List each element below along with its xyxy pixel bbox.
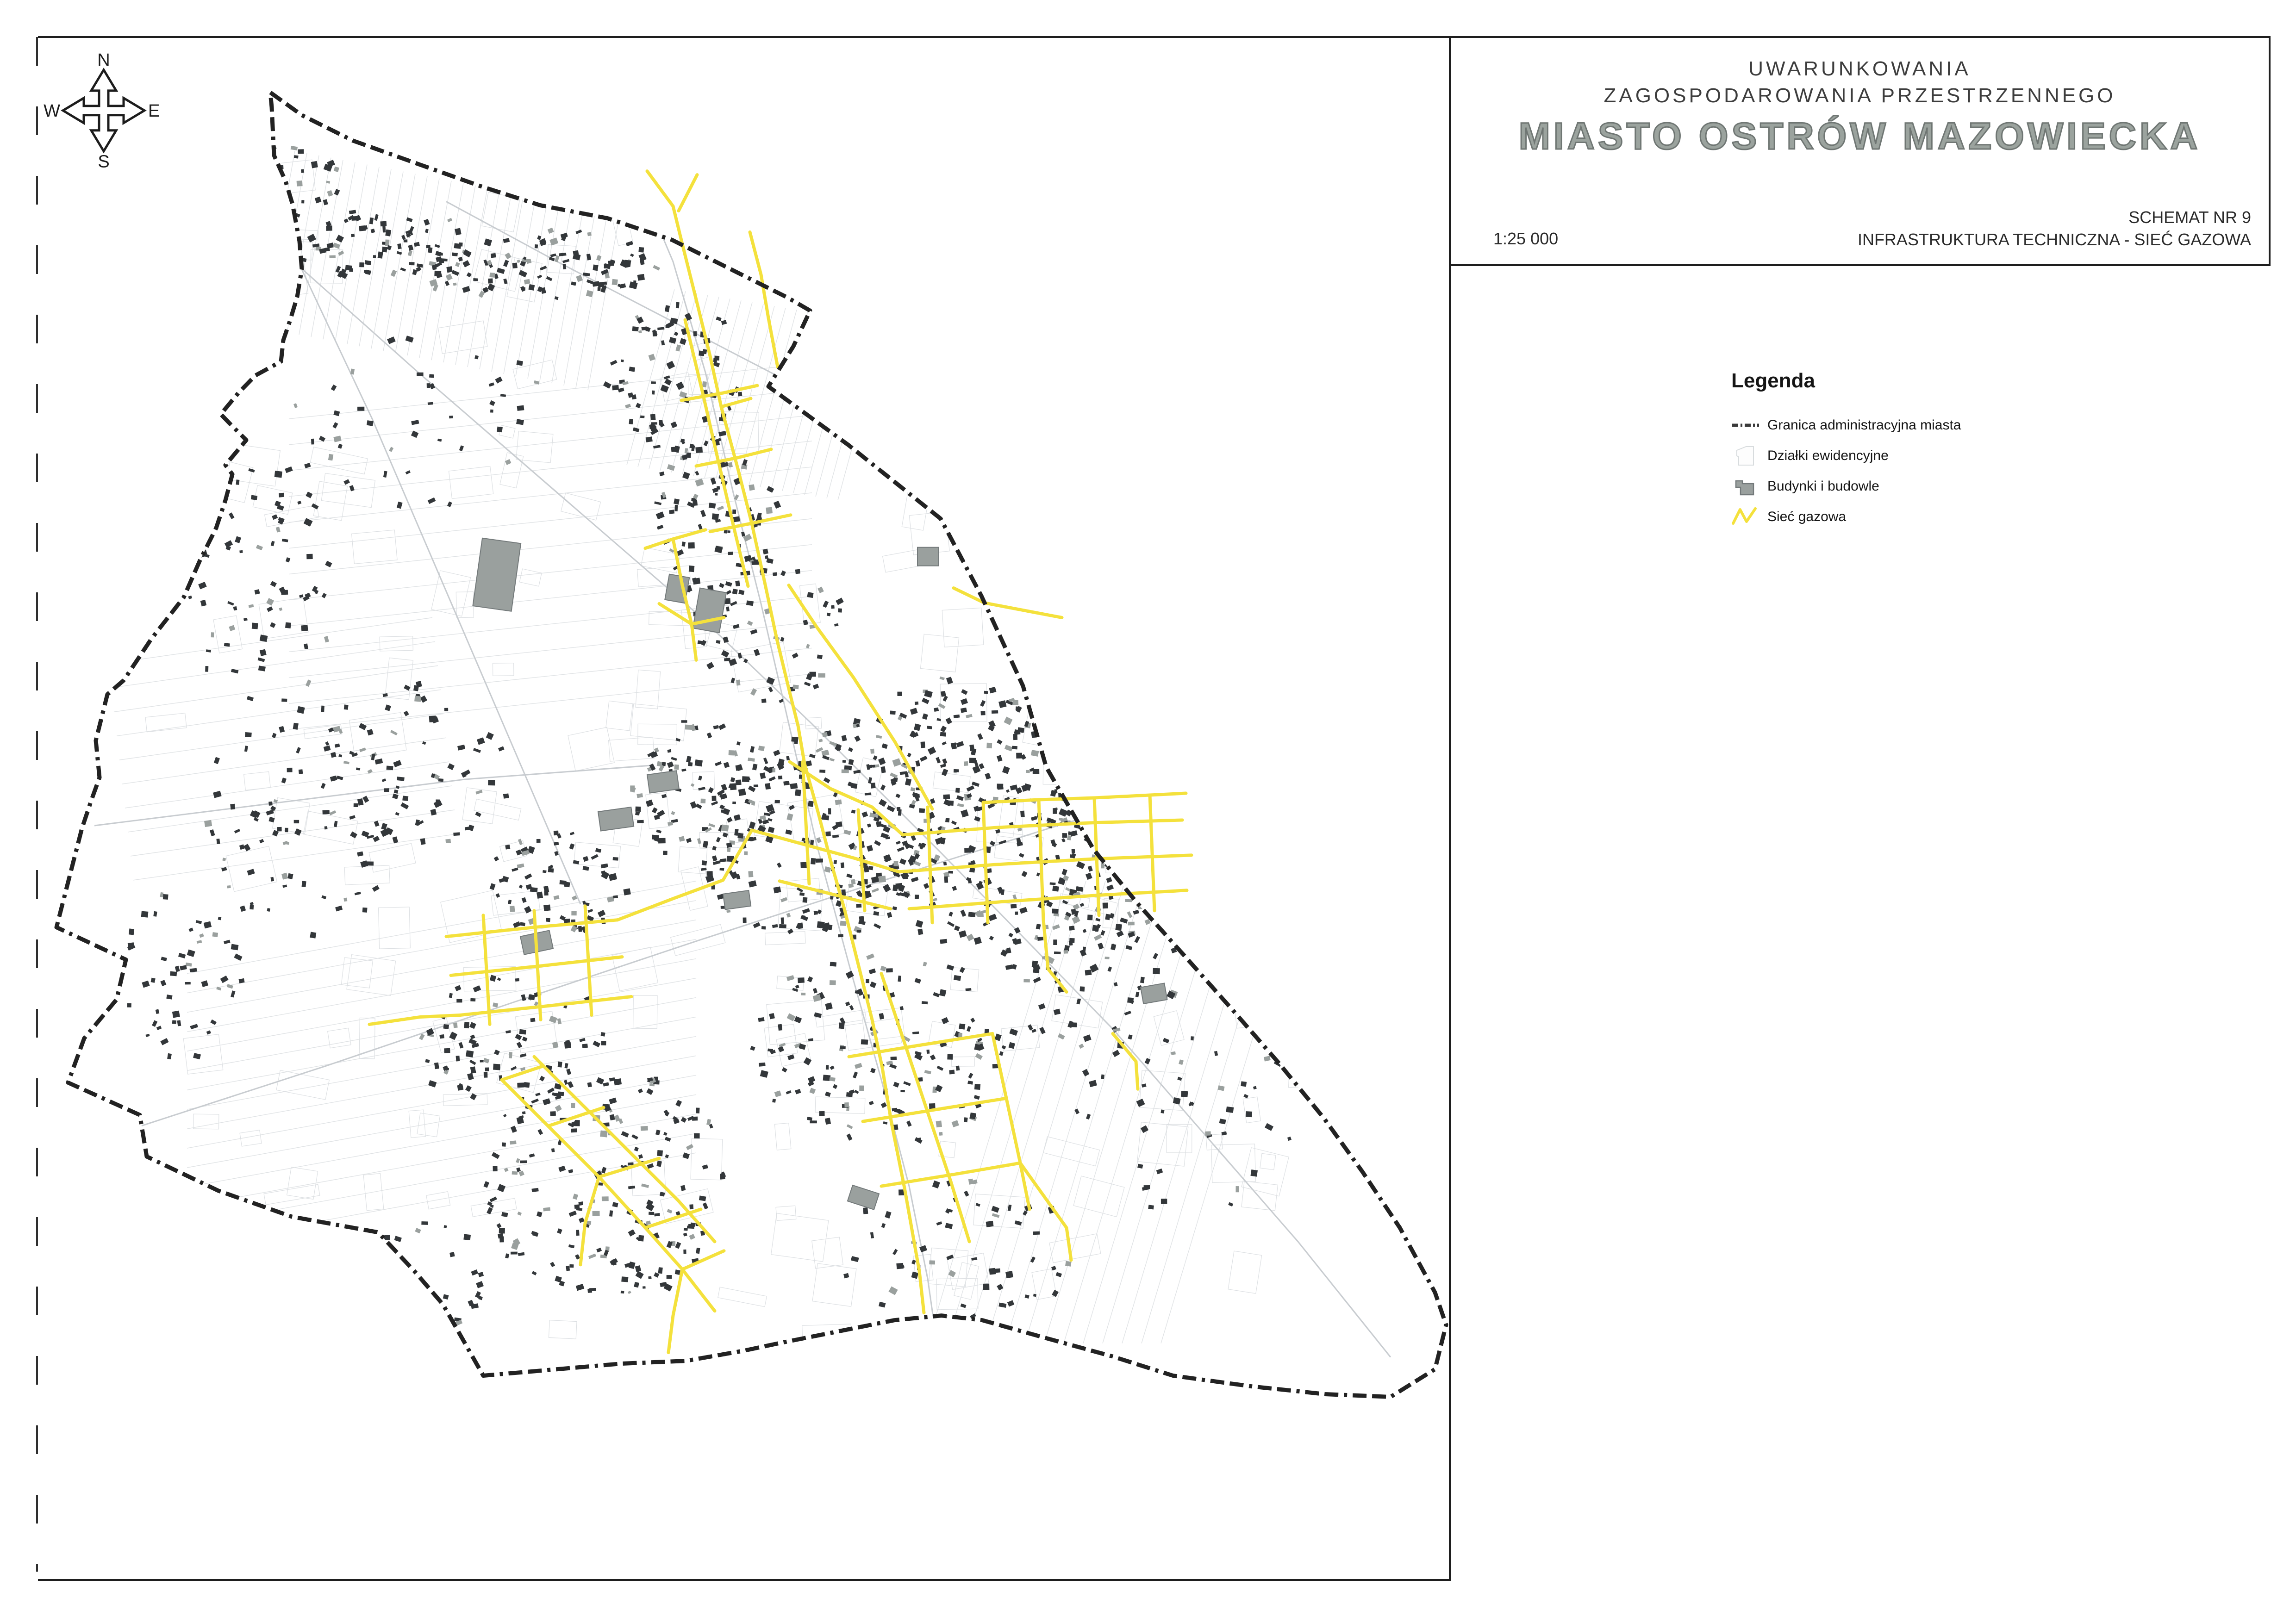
legend-title: Legenda — [1731, 369, 2217, 392]
legend-items: Granica administracyjna miastaDziałki ew… — [1731, 410, 2217, 532]
legend-item-label: Sieć gazowa — [1767, 509, 1846, 525]
legend-item-label: Działki ewidencyjne — [1767, 448, 1889, 464]
schema-subtitle: INFRASTRUKTURA TECHNICZNA - SIEĆ GAZOWA — [1858, 229, 2251, 251]
city-map: NSWE — [38, 38, 1449, 1579]
legend-item-buildings: Budynki i budowle — [1731, 471, 2217, 502]
svg-text:W: W — [44, 101, 60, 121]
study-title-line1: UWARUNKOWANIA — [1451, 57, 2269, 81]
schema-number: SCHEMAT NR 9 — [1858, 206, 2251, 229]
legend-item-label: Granica administracyjna miasta — [1767, 417, 1961, 433]
legend-item-boundary: Granica administracyjna miasta — [1731, 410, 2217, 441]
plan-sheet: NSWE UWARUNKOWANIA ZAGOSPODAROWANIA PRZE… — [0, 0, 2296, 1623]
legend: Legenda Granica administracyjna miastaDz… — [1731, 369, 2217, 532]
svg-text:E: E — [148, 101, 160, 121]
compass-rose-icon: NSWE — [44, 50, 160, 172]
title-block: UWARUNKOWANIA ZAGOSPODAROWANIA PRZESTRZE… — [1451, 36, 2271, 266]
legend-item-label: Budynki i budowle — [1767, 479, 1879, 494]
map-scale: 1:25 000 — [1493, 229, 1558, 249]
legend-item-gas: Sieć gazowa — [1731, 502, 2217, 532]
svg-text:N: N — [97, 50, 110, 70]
svg-text:S: S — [98, 152, 109, 172]
study-title-line2: ZAGOSPODAROWANIA PRZESTRZENNEGO — [1451, 84, 2269, 107]
schema-block: SCHEMAT NR 9 INFRASTRUKTURA TECHNICZNA -… — [1858, 206, 2251, 251]
parcels-symbol-icon — [1731, 445, 1760, 467]
legend-item-parcels: Działki ewidencyjne — [1731, 441, 2217, 471]
map-frame: NSWE — [38, 36, 1451, 1581]
boundary-symbol-icon — [1731, 414, 1760, 436]
gas-symbol-icon — [1731, 506, 1760, 528]
buildings-symbol-icon — [1731, 475, 1760, 497]
city-title: MIASTO OSTRÓW MAZOWIECKA — [1451, 115, 2269, 158]
